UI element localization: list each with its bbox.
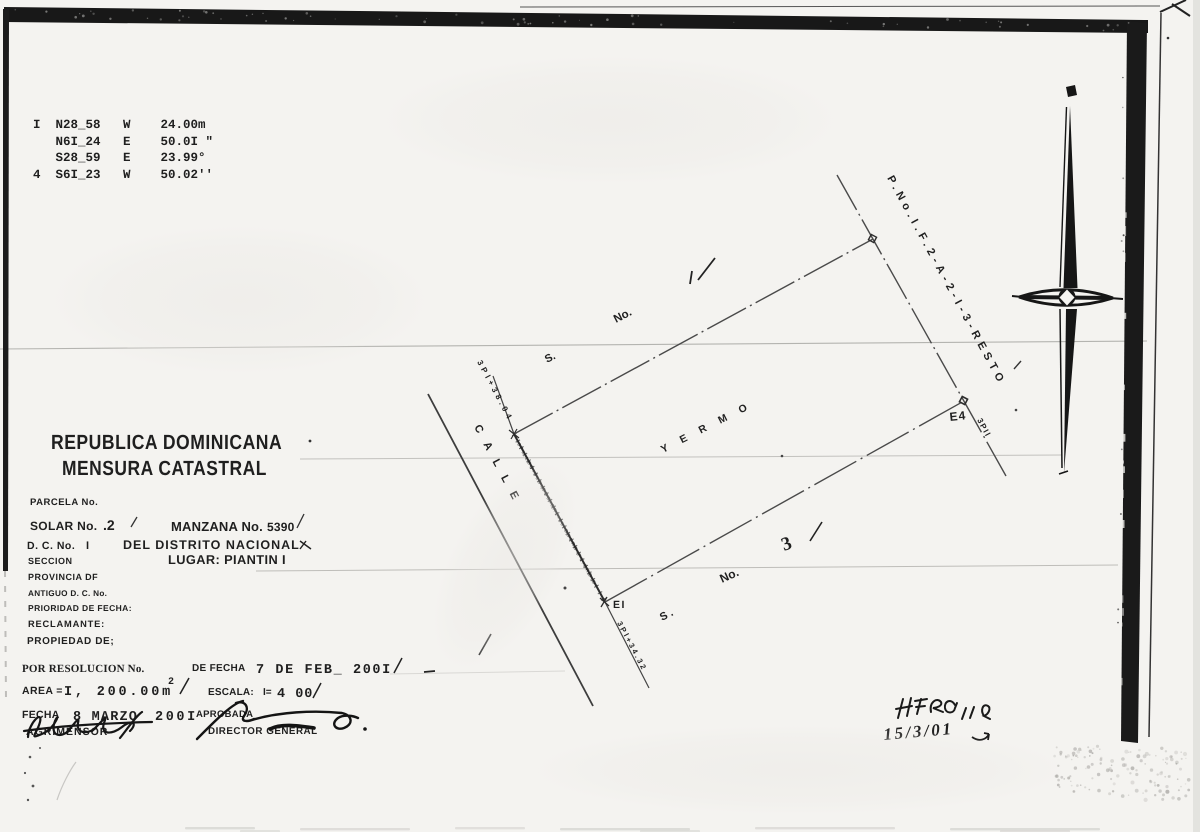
svg-text:DEL DISTRITO NACIONAL: DEL DISTRITO NACIONAL [123, 538, 300, 552]
svg-text:I=: I= [263, 687, 272, 698]
svg-text:.2: .2 [103, 517, 115, 533]
svg-text:I: I [86, 540, 89, 552]
svg-text:N6I_24 E 50.0I ": N6I_24 E 50.0I " [33, 135, 213, 149]
svg-text:POR RESOLUCION No.: POR RESOLUCION No. [22, 663, 145, 675]
svg-text:PRIORIDAD DE FECHA:: PRIORIDAD DE FECHA: [28, 603, 132, 613]
svg-text:I, 200.00m: I, 200.00m [64, 685, 173, 700]
svg-text:PROVINCIA DF: PROVINCIA DF [28, 572, 98, 582]
svg-text:7 DE FEB_ 200I: 7 DE FEB_ 200I [256, 663, 392, 678]
svg-text:200I: 200I [155, 710, 198, 725]
svg-text:MANZANA No.: MANZANA No. [171, 519, 263, 534]
svg-text:SECCION: SECCION [28, 556, 73, 566]
svg-text:I N28_58 W 24.00m: I N28_58 W 24.00m [33, 118, 206, 132]
svg-text:S28_59 E 23.99°: S28_59 E 23.99° [33, 151, 206, 165]
svg-text:D. C. No.: D. C. No. [27, 540, 75, 552]
svg-text:AREA =: AREA = [22, 685, 63, 697]
svg-text:ANTIGUO D. C. No.: ANTIGUO D. C. No. [28, 589, 107, 598]
svg-text:ESCALA:: ESCALA: [208, 687, 254, 698]
svg-text:REPUBLICA DOMINICANA: REPUBLICA DOMINICANA [51, 431, 282, 454]
svg-text:EI: EI [613, 599, 626, 611]
svg-text:DE FECHA: DE FECHA [192, 663, 246, 674]
svg-text:2: 2 [168, 677, 174, 688]
svg-text:LUGAR: PIANTIN I: LUGAR: PIANTIN I [168, 552, 286, 567]
svg-text:MENSURA CATASTRAL: MENSURA CATASTRAL [62, 457, 267, 480]
svg-text:RECLAMANTE:: RECLAMANTE: [28, 619, 105, 629]
svg-text:4 00: 4 00 [277, 687, 313, 702]
svg-text:4 S6I_23 W 50.02'': 4 S6I_23 W 50.02'' [33, 168, 213, 182]
svg-text:5390: 5390 [267, 520, 295, 534]
svg-text:SOLAR No.: SOLAR No. [30, 519, 97, 533]
svg-text:PROPIEDAD DE;: PROPIEDAD DE; [27, 636, 114, 647]
svg-text:PARCELA No.: PARCELA No. [30, 497, 98, 508]
svg-text:E4: E4 [949, 408, 967, 424]
